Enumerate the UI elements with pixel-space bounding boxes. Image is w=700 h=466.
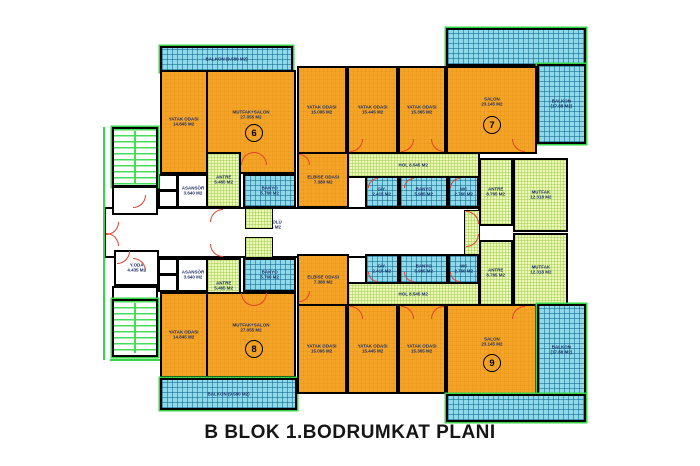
room-antre-9: ANTRE8.765 M2 bbox=[479, 240, 513, 306]
shaft-upper-a bbox=[158, 174, 178, 191]
room-balkon-7-top bbox=[446, 28, 586, 66]
stairs-lower bbox=[112, 299, 158, 357]
room-hol-7: HOL 8.545 M2 bbox=[347, 152, 480, 178]
shaft-lower-a bbox=[158, 258, 178, 275]
room-yatak-odasi-9a: YATAK ODASI15.095 M2 bbox=[297, 304, 347, 394]
room-balkon-7-side: BALKON(17.88 M2) bbox=[537, 64, 586, 144]
room-mutfak-7: MUTFAK12.318 M2 bbox=[513, 158, 568, 232]
room-antre-7: ANTRE8.765 M2 bbox=[479, 158, 513, 226]
unit-number-7: 7 bbox=[483, 116, 501, 134]
stair-rail bbox=[134, 303, 136, 353]
room-hol-9: HOL 8.545 M2 bbox=[347, 282, 480, 306]
boundary-line-bottom-left bbox=[110, 359, 160, 361]
room-balkon-9-bottom bbox=[446, 394, 586, 422]
room-banyo-9: BANYO5.985 M2 bbox=[399, 254, 448, 284]
unit-number-8: 8 bbox=[245, 340, 263, 358]
stair-rail bbox=[134, 131, 136, 183]
entry-mat-upper bbox=[245, 208, 273, 229]
room-giy-9: GİY.2.415 M2 bbox=[365, 254, 399, 284]
room-balkon-8: BALKON (9.580 M2) bbox=[160, 378, 297, 410]
room-asansor-lower: ASANSÖR3.640 M2 bbox=[177, 258, 208, 292]
room-balkon-6: BALKON (9.580 M2) bbox=[160, 46, 293, 72]
shaft-upper-b bbox=[158, 190, 178, 208]
room-banyo-8: BANYO5.760 M2 bbox=[243, 258, 296, 292]
floor-plan-page: KAT HOLÜ34.755 M2 BALKON (9.580 M2) YATA… bbox=[0, 0, 700, 466]
room-mutfak-9: MUTFAK12.318 M2 bbox=[513, 233, 568, 306]
room-asansor-upper: ASANSÖR3.640 M2 bbox=[177, 174, 208, 208]
page-title: B BLOK 1.BODRUMKAT PLANI bbox=[0, 422, 700, 444]
stair-landing-lower bbox=[112, 286, 158, 300]
room-banyo-6: BANYO5.760 M2 bbox=[243, 174, 296, 208]
entry-mat-lower bbox=[245, 237, 273, 258]
room-antre-6: ANTRE5.465 M2 bbox=[206, 152, 241, 208]
stairs-upper bbox=[112, 127, 158, 187]
room-yatak-odasi-7a: YATAK ODASI15.095 M2 bbox=[297, 66, 347, 154]
unit-number-6: 6 bbox=[245, 124, 263, 142]
room-balkon-9-side: BALKON(17.88 M2) bbox=[537, 304, 586, 396]
unit-number-9: 9 bbox=[483, 354, 501, 372]
shaft-lower-b bbox=[158, 274, 178, 292]
room-yatak-odasi-6: YATAK ODASI14.845 M2 bbox=[160, 70, 208, 174]
room-yatak-odasi-8: YATAK ODASI14.845 M2 bbox=[160, 292, 208, 378]
boundary-line-left bbox=[103, 127, 105, 360]
